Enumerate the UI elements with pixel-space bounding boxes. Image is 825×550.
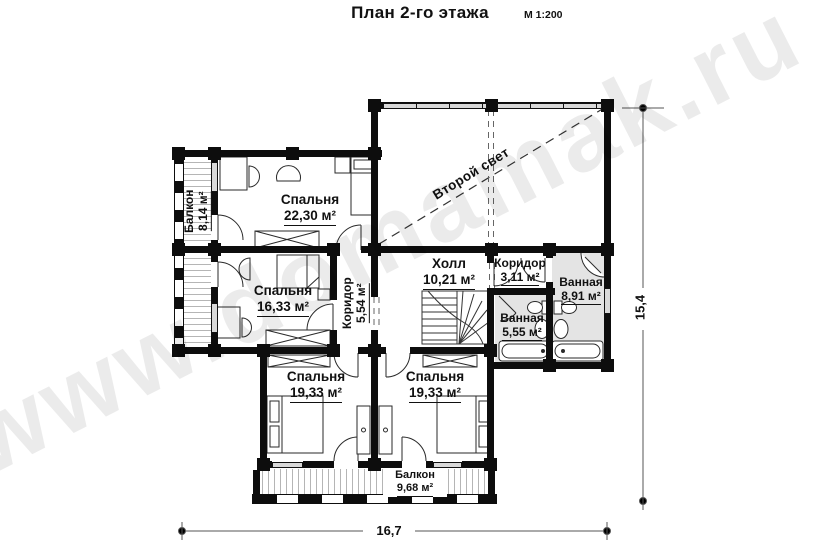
second-light-annotation: Второй свет — [403, 128, 539, 219]
room-label-bedroom-1933-left: Спальня 19,33 м² — [256, 369, 376, 403]
room-label-bath-555: Ванная 5,55 м² — [477, 311, 567, 341]
room-label-balcony-bottom: Балкон 9,68 м² — [383, 469, 447, 497]
room-label-bath-891: Ванная 8,91 м² — [536, 275, 626, 305]
dimension-height-label: 15,4 — [633, 282, 648, 334]
labels-layer: Спальня 22,30 м² Спальня 16,33 м² Балкон… — [0, 0, 825, 550]
room-label-corridor-554: Коридор 5,54 м² — [340, 261, 370, 345]
room-label-bedroom-1933-right: Спальня 19,33 м² — [375, 369, 495, 403]
room-label-bedroom-1633: Спальня 16,33 м² — [223, 283, 343, 317]
floor-plan-page: План 2-го этажа М 1:200 — [0, 0, 825, 550]
room-label-bedroom-2230: Спальня 22,30 м² — [250, 192, 370, 226]
dimension-width-label: 16,7 — [363, 523, 415, 538]
room-label-balcony-left: Балкон 8,14 м² — [182, 171, 212, 251]
